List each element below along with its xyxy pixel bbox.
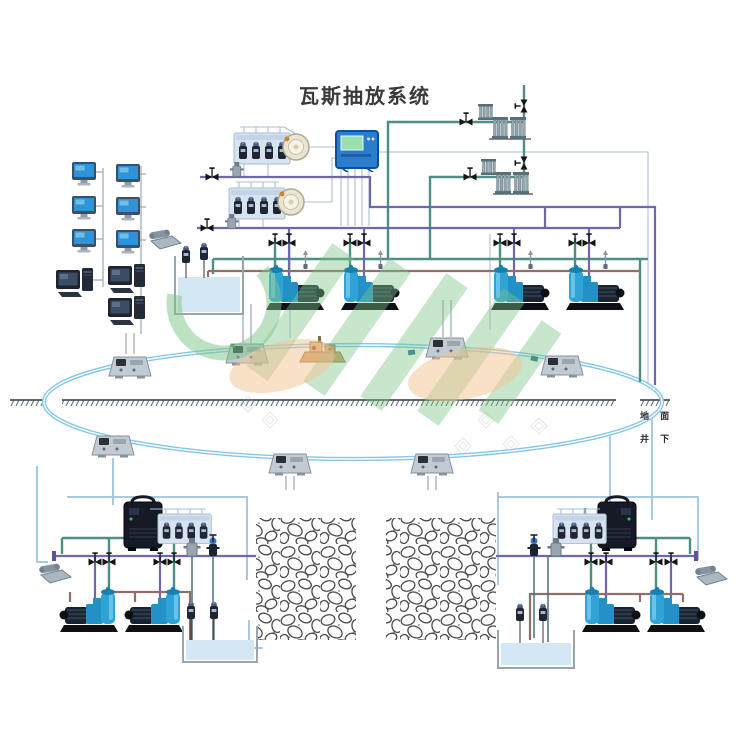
sensor-tray bbox=[158, 514, 211, 543]
blower-icon bbox=[278, 189, 304, 215]
blackvalve-flame-arrester bbox=[528, 534, 541, 556]
underground-pump-station-left bbox=[39, 497, 257, 662]
valve-icon bbox=[206, 167, 219, 180]
monitor-icon bbox=[116, 197, 140, 221]
tank-water bbox=[501, 643, 571, 665]
goaf-areas bbox=[256, 518, 496, 640]
monitor-icon bbox=[116, 164, 140, 188]
underground-pump-station-right bbox=[498, 497, 727, 668]
ring-substation bbox=[411, 454, 453, 476]
pump-unit bbox=[60, 587, 119, 632]
sensor-tray bbox=[229, 188, 285, 219]
gas-sensor-icon bbox=[182, 246, 190, 263]
diagram-canvas bbox=[0, 0, 750, 750]
station-valves bbox=[585, 552, 678, 565]
station-valves bbox=[89, 552, 181, 565]
pump-unit bbox=[125, 587, 184, 632]
pump-row-valves bbox=[269, 233, 596, 246]
telephone-icon bbox=[149, 229, 181, 249]
ring-substation bbox=[109, 357, 151, 379]
desktop-computer-icon bbox=[108, 296, 145, 325]
desktop-computer-icon bbox=[108, 264, 145, 293]
monitor-icon bbox=[72, 229, 96, 253]
underground-label: 井 下 bbox=[640, 432, 673, 445]
goaf-rock-area bbox=[256, 518, 356, 640]
surface-monitoring-network bbox=[56, 162, 181, 334]
telephone-icon bbox=[695, 565, 727, 585]
valve-icon bbox=[515, 157, 528, 170]
valve-icon bbox=[515, 100, 528, 113]
sensor-tray bbox=[553, 514, 606, 543]
telephone-icon bbox=[39, 563, 71, 583]
valve-icon bbox=[460, 112, 473, 125]
flame-arrester-fins bbox=[513, 172, 529, 194]
tank-water bbox=[186, 640, 254, 660]
page-title: 瓦斯抽放系统 bbox=[299, 80, 431, 109]
gas-sensor-icon bbox=[516, 604, 524, 621]
gas-sensor-icon bbox=[210, 602, 218, 619]
sensor-station-top bbox=[201, 131, 379, 232]
control-panel bbox=[336, 131, 378, 172]
sensor-tray bbox=[234, 133, 290, 164]
blower-icon bbox=[283, 134, 309, 160]
flame-arrester-fins bbox=[481, 159, 496, 175]
flame-arrester-fins bbox=[495, 172, 511, 194]
ring-substation bbox=[92, 436, 134, 458]
valve-icon bbox=[201, 218, 214, 231]
valve-icon bbox=[464, 167, 477, 180]
flame-arrester-fins bbox=[510, 117, 526, 139]
desktop-computer-icon bbox=[56, 268, 93, 297]
ring-substation bbox=[541, 356, 583, 378]
flame-arrester-manifolds bbox=[460, 100, 534, 195]
panel-screen bbox=[341, 136, 363, 150]
monitor-icon bbox=[72, 196, 96, 220]
controller-box bbox=[124, 497, 162, 551]
goaf-rock-area bbox=[386, 518, 496, 640]
ground-hatch bbox=[10, 400, 670, 406]
tank-water bbox=[178, 277, 240, 312]
gas-sensor-icon bbox=[187, 602, 195, 619]
flame-arrester-fins bbox=[492, 117, 508, 139]
monitor-icon bbox=[116, 230, 140, 254]
gas-sensor-icon bbox=[200, 243, 208, 260]
flame-arrester-fins bbox=[478, 104, 493, 120]
surface-label: 地 面 bbox=[640, 409, 673, 422]
gas-drainage-system-diagram: 瓦斯抽放系统 地 面 井 下 bbox=[0, 0, 750, 750]
gas-sensor-icon bbox=[539, 604, 547, 621]
ring-substation bbox=[269, 454, 311, 476]
monitor-icon bbox=[72, 162, 96, 186]
